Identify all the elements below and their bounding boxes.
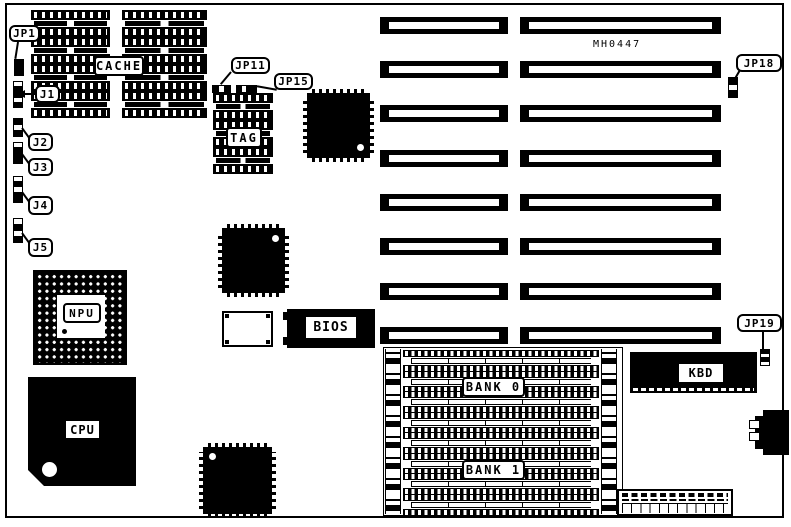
qfp-pins: [218, 233, 222, 288]
qfp-pins: [285, 233, 289, 288]
corner-mark: [266, 340, 270, 344]
connector-pin-row: [622, 503, 728, 513]
isa-slot-segment: [380, 238, 508, 255]
simm-slot-row: [411, 358, 591, 364]
socket-pin-row: [122, 108, 207, 118]
callout-j1: J1: [35, 85, 60, 103]
socket-pin-row: [122, 37, 207, 47]
keyboard-din-connector: [763, 410, 789, 455]
isa-slot-segment: [380, 283, 508, 300]
socket-pin-row: [213, 93, 273, 103]
part-number: MH0447: [593, 39, 641, 50]
socket-pin-row: [31, 108, 110, 118]
bank1-label: BANK 1: [462, 460, 525, 480]
chip-body-bars: [125, 21, 204, 26]
qfp-chip: [222, 228, 285, 293]
isa-slot-segment: [520, 61, 721, 78]
chip-body-bars: [34, 48, 107, 53]
callout-jp19: JP19: [737, 314, 782, 332]
jumper-pin: [14, 158, 22, 163]
jumper-jp1: [14, 59, 24, 76]
jumper-pin: [729, 90, 737, 97]
jumper-pin: [224, 86, 230, 92]
qfp-pins: [312, 158, 365, 162]
chip-body-bars: [125, 102, 204, 107]
qfp-pins: [272, 452, 276, 509]
isa-slot-segment: [380, 194, 508, 211]
din-pin: [749, 420, 760, 429]
isa-slot-segment: [380, 327, 508, 344]
socket-pin-row: [213, 110, 273, 120]
callout-jp11: JP11: [231, 57, 270, 74]
jumper-jp11: [212, 85, 231, 93]
tag-label: TAG: [226, 127, 262, 148]
isa-slot-segment: [520, 238, 721, 255]
dip-socket: [122, 91, 207, 118]
isa-slot-segment: [380, 61, 508, 78]
jumper-jp18: [728, 77, 738, 98]
callout-jp1: JP1: [9, 25, 40, 42]
power-connector: [617, 489, 733, 516]
leader-line: [762, 331, 764, 349]
simm-contact-row: [403, 412, 599, 419]
corner-mark: [266, 314, 270, 318]
simm-contact-row: [403, 350, 599, 357]
corner-mark: [225, 340, 229, 344]
simm-slot-row: [411, 481, 591, 487]
dip-socket: [213, 147, 273, 174]
isa-slot-segment: [520, 105, 721, 122]
callout-j4: J4: [28, 196, 53, 215]
cpu-label: CPU: [66, 421, 99, 438]
socket-pin-row: [122, 27, 207, 37]
motherboard-diagram: MH0447 JP1 J1 J2 J3 J4 J5 JP11: [0, 0, 791, 527]
simm-latch-column: [601, 349, 617, 514]
dip-socket: [31, 10, 110, 37]
bios-pin-tab: [283, 337, 287, 345]
dip-socket: [213, 93, 273, 120]
simm-contact-row: [403, 432, 599, 439]
isa-slot-segment: [520, 194, 721, 211]
socket-pin-row: [122, 81, 207, 91]
socket-pin-row: [213, 164, 273, 174]
simm-contact-row: [403, 509, 599, 516]
socket-pin-row: [122, 91, 207, 101]
callout-j2: J2: [28, 133, 53, 151]
chip-body-bars: [216, 158, 270, 163]
simm-slot-row: [411, 440, 591, 446]
simm-socket: [403, 494, 599, 517]
corner-mark: [225, 314, 229, 318]
simm-contact-row: [403, 494, 599, 501]
isa-slot-segment: [520, 150, 721, 167]
cpu-pin1-marker: [42, 462, 57, 477]
isa-slot-segment: [520, 327, 721, 344]
jumper-jp15: [236, 85, 257, 93]
jumper-j5: [13, 218, 23, 243]
dip-socket: [122, 10, 207, 37]
qfp-pins: [208, 443, 267, 447]
callout-jp15: JP15: [274, 73, 313, 90]
qfp-pins: [208, 514, 267, 518]
simm-socket: [403, 432, 599, 455]
qfp-pin1-marker: [209, 453, 216, 460]
connector-dash-row: [622, 499, 728, 501]
simm-slot-row: [411, 502, 591, 508]
jumper-pin: [15, 60, 23, 67]
socket-pin-row: [122, 10, 207, 20]
qfp-pins: [227, 224, 280, 228]
bank0-label: BANK 0: [462, 377, 525, 397]
callout-j3: J3: [28, 158, 53, 176]
jumper-pin: [251, 86, 256, 92]
isa-slot-segment: [380, 105, 508, 122]
jumper-pin: [14, 102, 22, 107]
qfp-pin1-marker: [272, 235, 279, 242]
simm-slot-row: [411, 420, 591, 426]
jumper-pin: [14, 197, 22, 202]
qfp-pins: [303, 98, 307, 153]
callout-jp18: JP18: [736, 54, 782, 72]
qfp-pins: [312, 89, 365, 93]
jumper-pin: [15, 67, 23, 75]
socket-pin-row: [31, 27, 110, 37]
chip-body-bars: [125, 48, 204, 53]
callout-j5: J5: [28, 238, 53, 257]
qfp-pins: [227, 293, 280, 297]
kbd-label: KBD: [679, 364, 723, 382]
jumper-pin: [14, 130, 22, 136]
socket-pin-row: [31, 10, 110, 20]
npu-label: NPU: [63, 303, 101, 323]
jumper-pin: [14, 236, 22, 242]
isa-slot-segment: [520, 17, 721, 34]
jumper-pin: [729, 84, 737, 91]
npu-pin1-marker: [62, 329, 67, 334]
isa-slot-segment: [520, 283, 721, 300]
qfp-chip: [307, 93, 370, 158]
chip-body-bars: [34, 21, 107, 26]
simm-slot-row: [411, 399, 591, 405]
socket-pin-row: [31, 37, 110, 47]
bios-label: BIOS: [306, 317, 356, 338]
jumper-pin: [761, 361, 769, 365]
oscillator: [222, 311, 273, 347]
jumper-jp19: [760, 349, 770, 366]
qfp-pins: [370, 98, 374, 153]
connector-hooks-row: [622, 493, 728, 497]
qfp-pin1-marker: [357, 144, 364, 151]
isa-slot-segment: [380, 150, 508, 167]
cache-label: CACHE: [94, 56, 144, 76]
simm-contact-row: [403, 453, 599, 460]
bios-pin-tab: [283, 312, 287, 320]
qfp-pins: [199, 452, 203, 509]
isa-slot-segment: [380, 17, 508, 34]
din-pin: [749, 432, 760, 441]
socket-pin-row: [213, 147, 273, 157]
simm-socket: [403, 350, 599, 373]
chip-body-bars: [216, 104, 270, 109]
qfp-chip: [203, 447, 272, 514]
simm-latch-column: [385, 349, 401, 514]
jumper-j4: [13, 176, 23, 203]
leader-arrow: [18, 90, 25, 98]
